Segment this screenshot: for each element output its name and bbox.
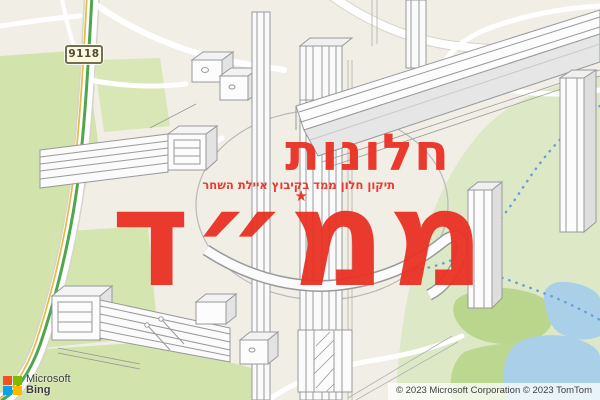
map-canvas[interactable]: 9118 חלונות תיקון חלון ממד בקיבוץ איילת … <box>0 0 600 400</box>
bing-logo[interactable]: Microsoft Bing <box>3 374 71 396</box>
route-shield-label: 9118 <box>68 49 99 60</box>
profile-beam-upper-left <box>40 104 217 188</box>
microsoft-logo-icon <box>3 376 22 395</box>
clip-bracket-parts <box>192 52 259 100</box>
logo-text-bing: Bing <box>26 385 71 396</box>
right-posts <box>468 70 596 308</box>
map-attribution: © 2023 Microsoft Corporation © 2023 TomT… <box>388 383 600 400</box>
route-shield: 9118 <box>65 45 103 64</box>
